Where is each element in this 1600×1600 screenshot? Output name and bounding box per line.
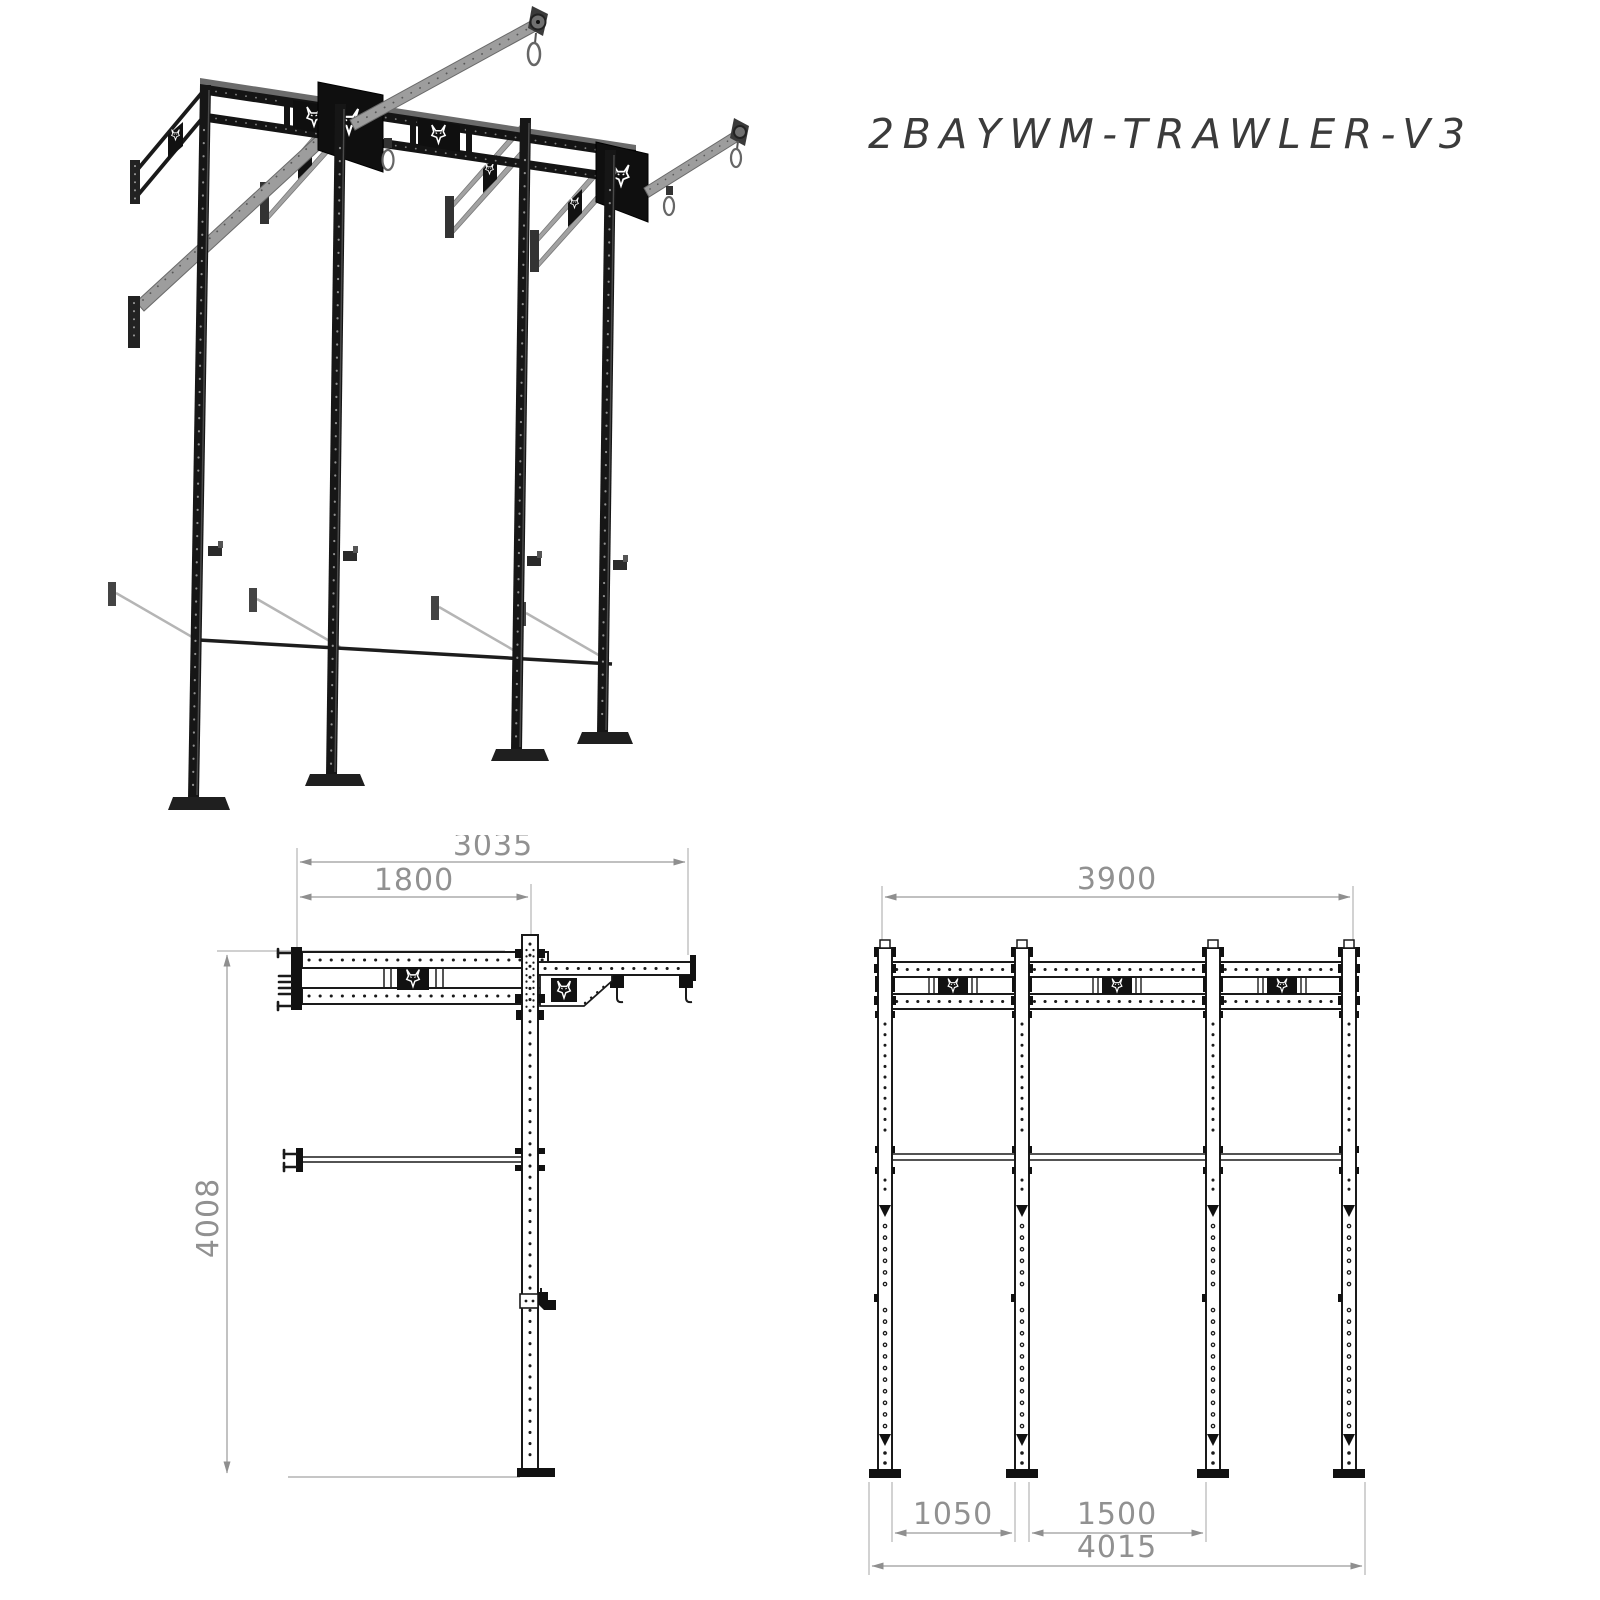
dim-total-width: 4015 [1077,1530,1157,1565]
side-wall-bracket [278,947,302,1010]
part-number-title: 2BAYWM-TRAWLER-V3 [868,110,1528,158]
side-elevation-view: 3035 1800 4008 [150,835,750,1580]
front-post-1 [869,940,901,1478]
foot-plates [168,732,633,810]
wall-beam-bay1 [130,86,205,204]
wall-mount-plate [445,196,454,238]
dim-bay-left: 1050 [913,1497,993,1532]
front-post-3 [1197,940,1229,1478]
side-beam [302,952,548,1004]
carabiner-icon [731,149,741,167]
hanger-hook-icon [686,988,692,1002]
pulley-wheel-icon [734,126,746,138]
dim-height: 4008 [191,1178,226,1258]
carabiner-icon [528,43,540,65]
boom-pivot-gusset-right [596,142,648,222]
front-post-4 [1333,940,1365,1478]
carabiner-icon [383,150,394,170]
upright-posts [188,85,616,798]
carabiner-icon [664,197,674,215]
wall-mount-plate [108,582,116,606]
isometric-render-view [88,0,788,825]
trawler-boom-left [128,133,328,348]
wall-mount-plate [530,230,539,272]
dim-overall-depth: 3035 [453,835,533,863]
front-post-2 [1006,940,1038,1478]
wall-mount-plate [431,596,439,620]
front-elevation-view: 3900 1050 1500 4015 [845,835,1430,1600]
front-pullup-bar [199,640,612,664]
dim-beam-length: 3900 [1077,862,1157,897]
pullup-bars [108,582,612,664]
dim-wall-to-post: 1800 [374,863,454,898]
j-cup-brackets [208,541,628,570]
drawing-sheet: 2BAYWM-TRAWLER-V3 [0,0,1600,1600]
side-pullup-bar [284,1148,545,1172]
dim-bay-right: 1500 [1077,1497,1157,1532]
boom-pivot-gusset-left [318,82,383,172]
front-pullup-bar [879,1154,1356,1160]
trawler-boom-right [644,118,749,215]
side-post [515,935,545,1470]
hanger-hook-icon [617,988,623,1002]
side-gusset [540,975,612,1006]
front-beam [879,962,1356,1009]
side-foot-plate [517,1468,555,1477]
wall-mount-plate [249,588,257,612]
